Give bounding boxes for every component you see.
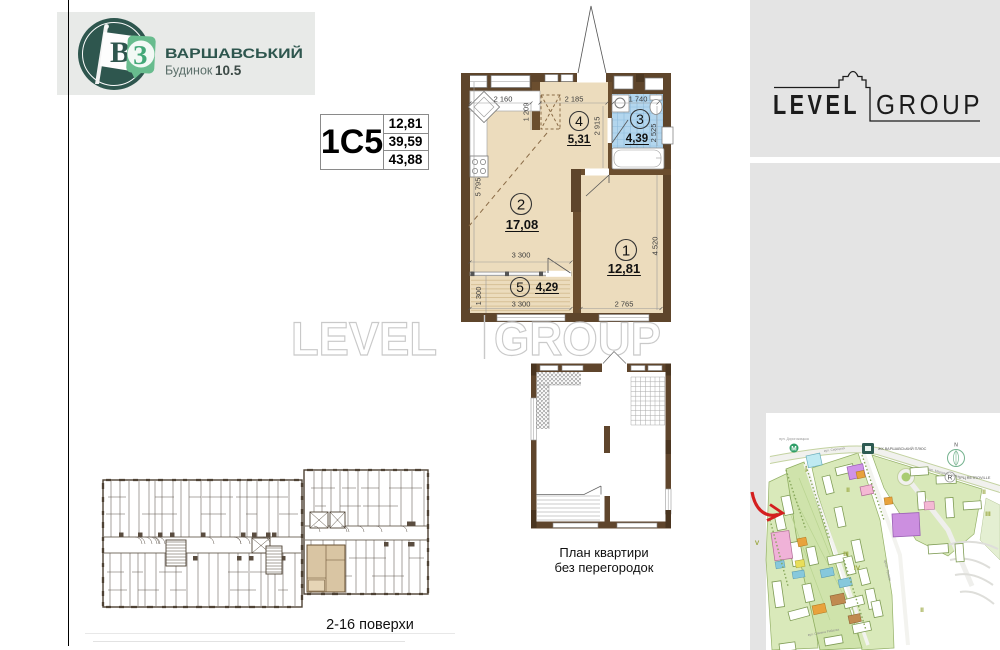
svg-text:1 209: 1 209	[522, 103, 531, 122]
svg-text:4 520: 4 520	[651, 237, 660, 256]
svg-text:3 300: 3 300	[512, 251, 531, 260]
svg-text:2 185: 2 185	[565, 95, 584, 104]
svg-text:III: III	[985, 511, 991, 518]
svg-text:2 160: 2 160	[494, 95, 513, 104]
svg-text:III: III	[843, 551, 849, 558]
svg-text:1 740: 1 740	[629, 95, 648, 104]
svg-text:ТРЦ RETROVILLE: ТРЦ RETROVILLE	[958, 476, 991, 480]
svg-text:З: З	[133, 40, 147, 70]
svg-text:V: V	[755, 540, 760, 547]
svg-text:ЖК ВАРШАВСЬКИЙ ПЛЮС: ЖК ВАРШАВСЬКИЙ ПЛЮС	[878, 447, 927, 451]
svg-text:17,08: 17,08	[506, 217, 539, 232]
svg-text:II: II	[982, 489, 986, 496]
svg-text:5 795: 5 795	[474, 178, 483, 197]
svg-text:10.5: 10.5	[215, 63, 242, 78]
svg-text:1: 1	[622, 242, 630, 259]
svg-text:GROUP: GROUP	[876, 89, 983, 120]
svg-text:3: 3	[636, 111, 644, 127]
svg-text:4,39: 4,39	[626, 133, 648, 145]
svg-text:II: II	[920, 607, 924, 614]
svg-text:4,29: 4,29	[536, 282, 558, 294]
svg-text:I: I	[805, 467, 807, 474]
svg-text:II: II	[846, 487, 850, 494]
svg-text:N: N	[954, 443, 958, 449]
svg-text:М: М	[791, 446, 796, 453]
svg-text:5,31: 5,31	[568, 134, 591, 146]
svg-text:ВАРШАВСЬКИЙ: ВАРШАВСЬКИЙ	[165, 46, 303, 61]
svg-text:5: 5	[516, 279, 524, 295]
svg-text:2 765: 2 765	[615, 300, 634, 309]
svg-text:1 300: 1 300	[474, 287, 483, 306]
svg-text:2 915: 2 915	[593, 117, 602, 136]
svg-text:LEVEL: LEVEL	[291, 312, 437, 365]
svg-text:вул. Дорогожицька: вул. Дорогожицька	[779, 437, 809, 441]
svg-text:4: 4	[575, 113, 583, 129]
svg-text:Будинок: Будинок	[165, 64, 213, 78]
svg-text:IV: IV	[854, 565, 861, 572]
svg-text:2: 2	[517, 196, 525, 213]
svg-text:3 300: 3 300	[512, 300, 531, 309]
svg-text:LEVEL: LEVEL	[773, 89, 860, 120]
svg-text:12,81: 12,81	[608, 261, 641, 276]
svg-text:2 525: 2 525	[649, 124, 658, 143]
